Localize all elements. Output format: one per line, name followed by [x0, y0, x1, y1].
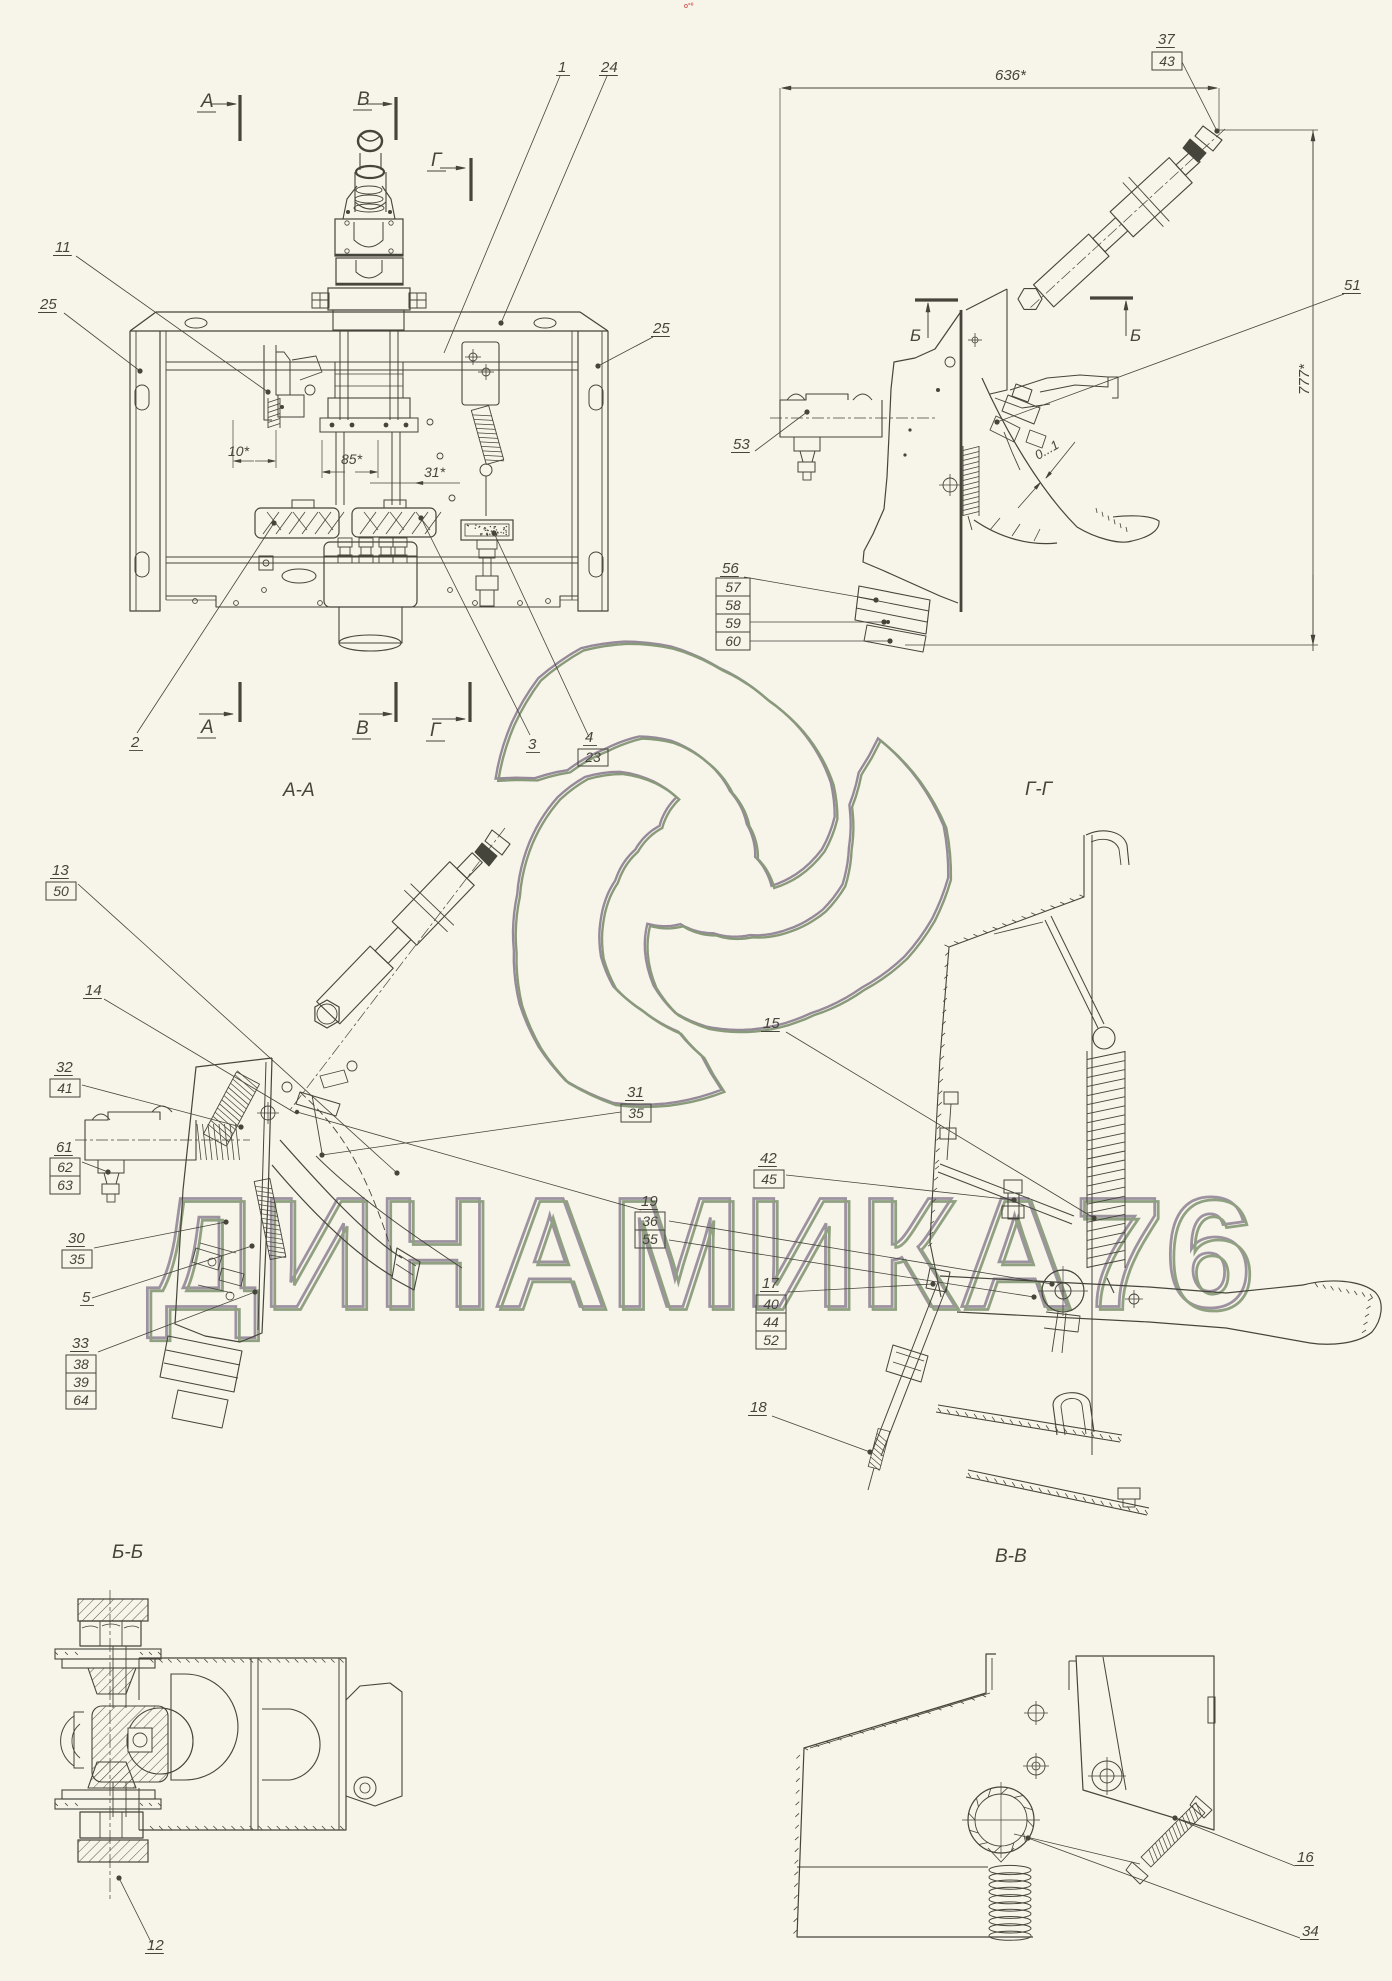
svg-text:Г-Г: Г-Г	[1025, 779, 1054, 800]
svg-text:777*: 777*	[1296, 363, 1313, 395]
svg-text:19: 19	[641, 1193, 658, 1210]
svg-text:40: 40	[763, 1296, 779, 1312]
svg-text:35: 35	[628, 1105, 644, 1121]
svg-text:51: 51	[1344, 277, 1361, 294]
svg-text:15: 15	[763, 1015, 780, 1032]
svg-text:50: 50	[53, 883, 69, 899]
svg-text:56: 56	[722, 560, 739, 577]
svg-text:36: 36	[642, 1213, 658, 1229]
svg-text:B: B	[356, 718, 369, 739]
svg-text:33: 33	[72, 1335, 89, 1352]
svg-text:42: 42	[760, 1150, 777, 1167]
svg-text:1: 1	[558, 59, 566, 76]
svg-text:59: 59	[725, 615, 741, 631]
svg-text:64: 64	[73, 1392, 89, 1408]
svg-text:60: 60	[725, 633, 741, 649]
svg-text:3: 3	[528, 736, 537, 753]
svg-text:10*: 10*	[228, 443, 250, 459]
svg-text:o°º: o°º	[684, 2, 694, 10]
svg-text:24: 24	[600, 59, 618, 76]
svg-text:57: 57	[725, 579, 742, 595]
svg-text:A-A: A-A	[282, 780, 315, 801]
svg-text:43: 43	[1159, 53, 1175, 69]
svg-text:53: 53	[733, 436, 750, 453]
svg-text:45: 45	[761, 1171, 777, 1187]
svg-text:61: 61	[56, 1139, 73, 1156]
svg-text:Б: Б	[910, 326, 921, 345]
svg-text:B-B: B-B	[995, 1546, 1027, 1567]
svg-text:58: 58	[725, 597, 741, 613]
svg-text:39: 39	[73, 1374, 89, 1390]
svg-text:23: 23	[584, 749, 601, 765]
svg-text:5: 5	[82, 1289, 91, 1306]
svg-text:32: 32	[56, 1059, 73, 1076]
svg-text:0...1: 0...1	[1032, 437, 1061, 463]
svg-text:Б: Б	[1130, 326, 1141, 345]
svg-text:25: 25	[652, 320, 670, 337]
svg-text:44: 44	[763, 1314, 779, 1330]
svg-text:62: 62	[57, 1159, 73, 1175]
svg-text:14: 14	[85, 982, 102, 999]
svg-text:37: 37	[1158, 31, 1175, 48]
svg-text:16: 16	[1297, 1849, 1314, 1866]
svg-text:A: A	[200, 717, 214, 738]
svg-text:31*: 31*	[424, 464, 446, 480]
svg-text:18: 18	[750, 1399, 767, 1416]
svg-text:11: 11	[55, 239, 71, 256]
svg-text:63: 63	[57, 1177, 73, 1193]
svg-text:34: 34	[1302, 1923, 1319, 1940]
svg-text:A: A	[200, 91, 214, 112]
svg-text:38: 38	[73, 1356, 89, 1372]
svg-text:85*: 85*	[341, 451, 363, 467]
svg-text:2: 2	[130, 734, 140, 751]
svg-text:41: 41	[57, 1080, 73, 1096]
svg-text:636*: 636*	[995, 67, 1027, 84]
svg-text:Г: Г	[430, 720, 442, 741]
svg-text:52: 52	[763, 1332, 779, 1348]
svg-text:35: 35	[69, 1251, 85, 1267]
svg-text:55: 55	[642, 1231, 658, 1247]
svg-text:31: 31	[627, 1084, 644, 1101]
svg-text:30: 30	[68, 1230, 85, 1247]
svg-text:Б-Б: Б-Б	[112, 1542, 143, 1563]
svg-text:25: 25	[39, 296, 57, 313]
svg-text:13: 13	[52, 862, 69, 879]
svg-text:B: B	[357, 89, 370, 110]
svg-text:17: 17	[762, 1275, 779, 1292]
